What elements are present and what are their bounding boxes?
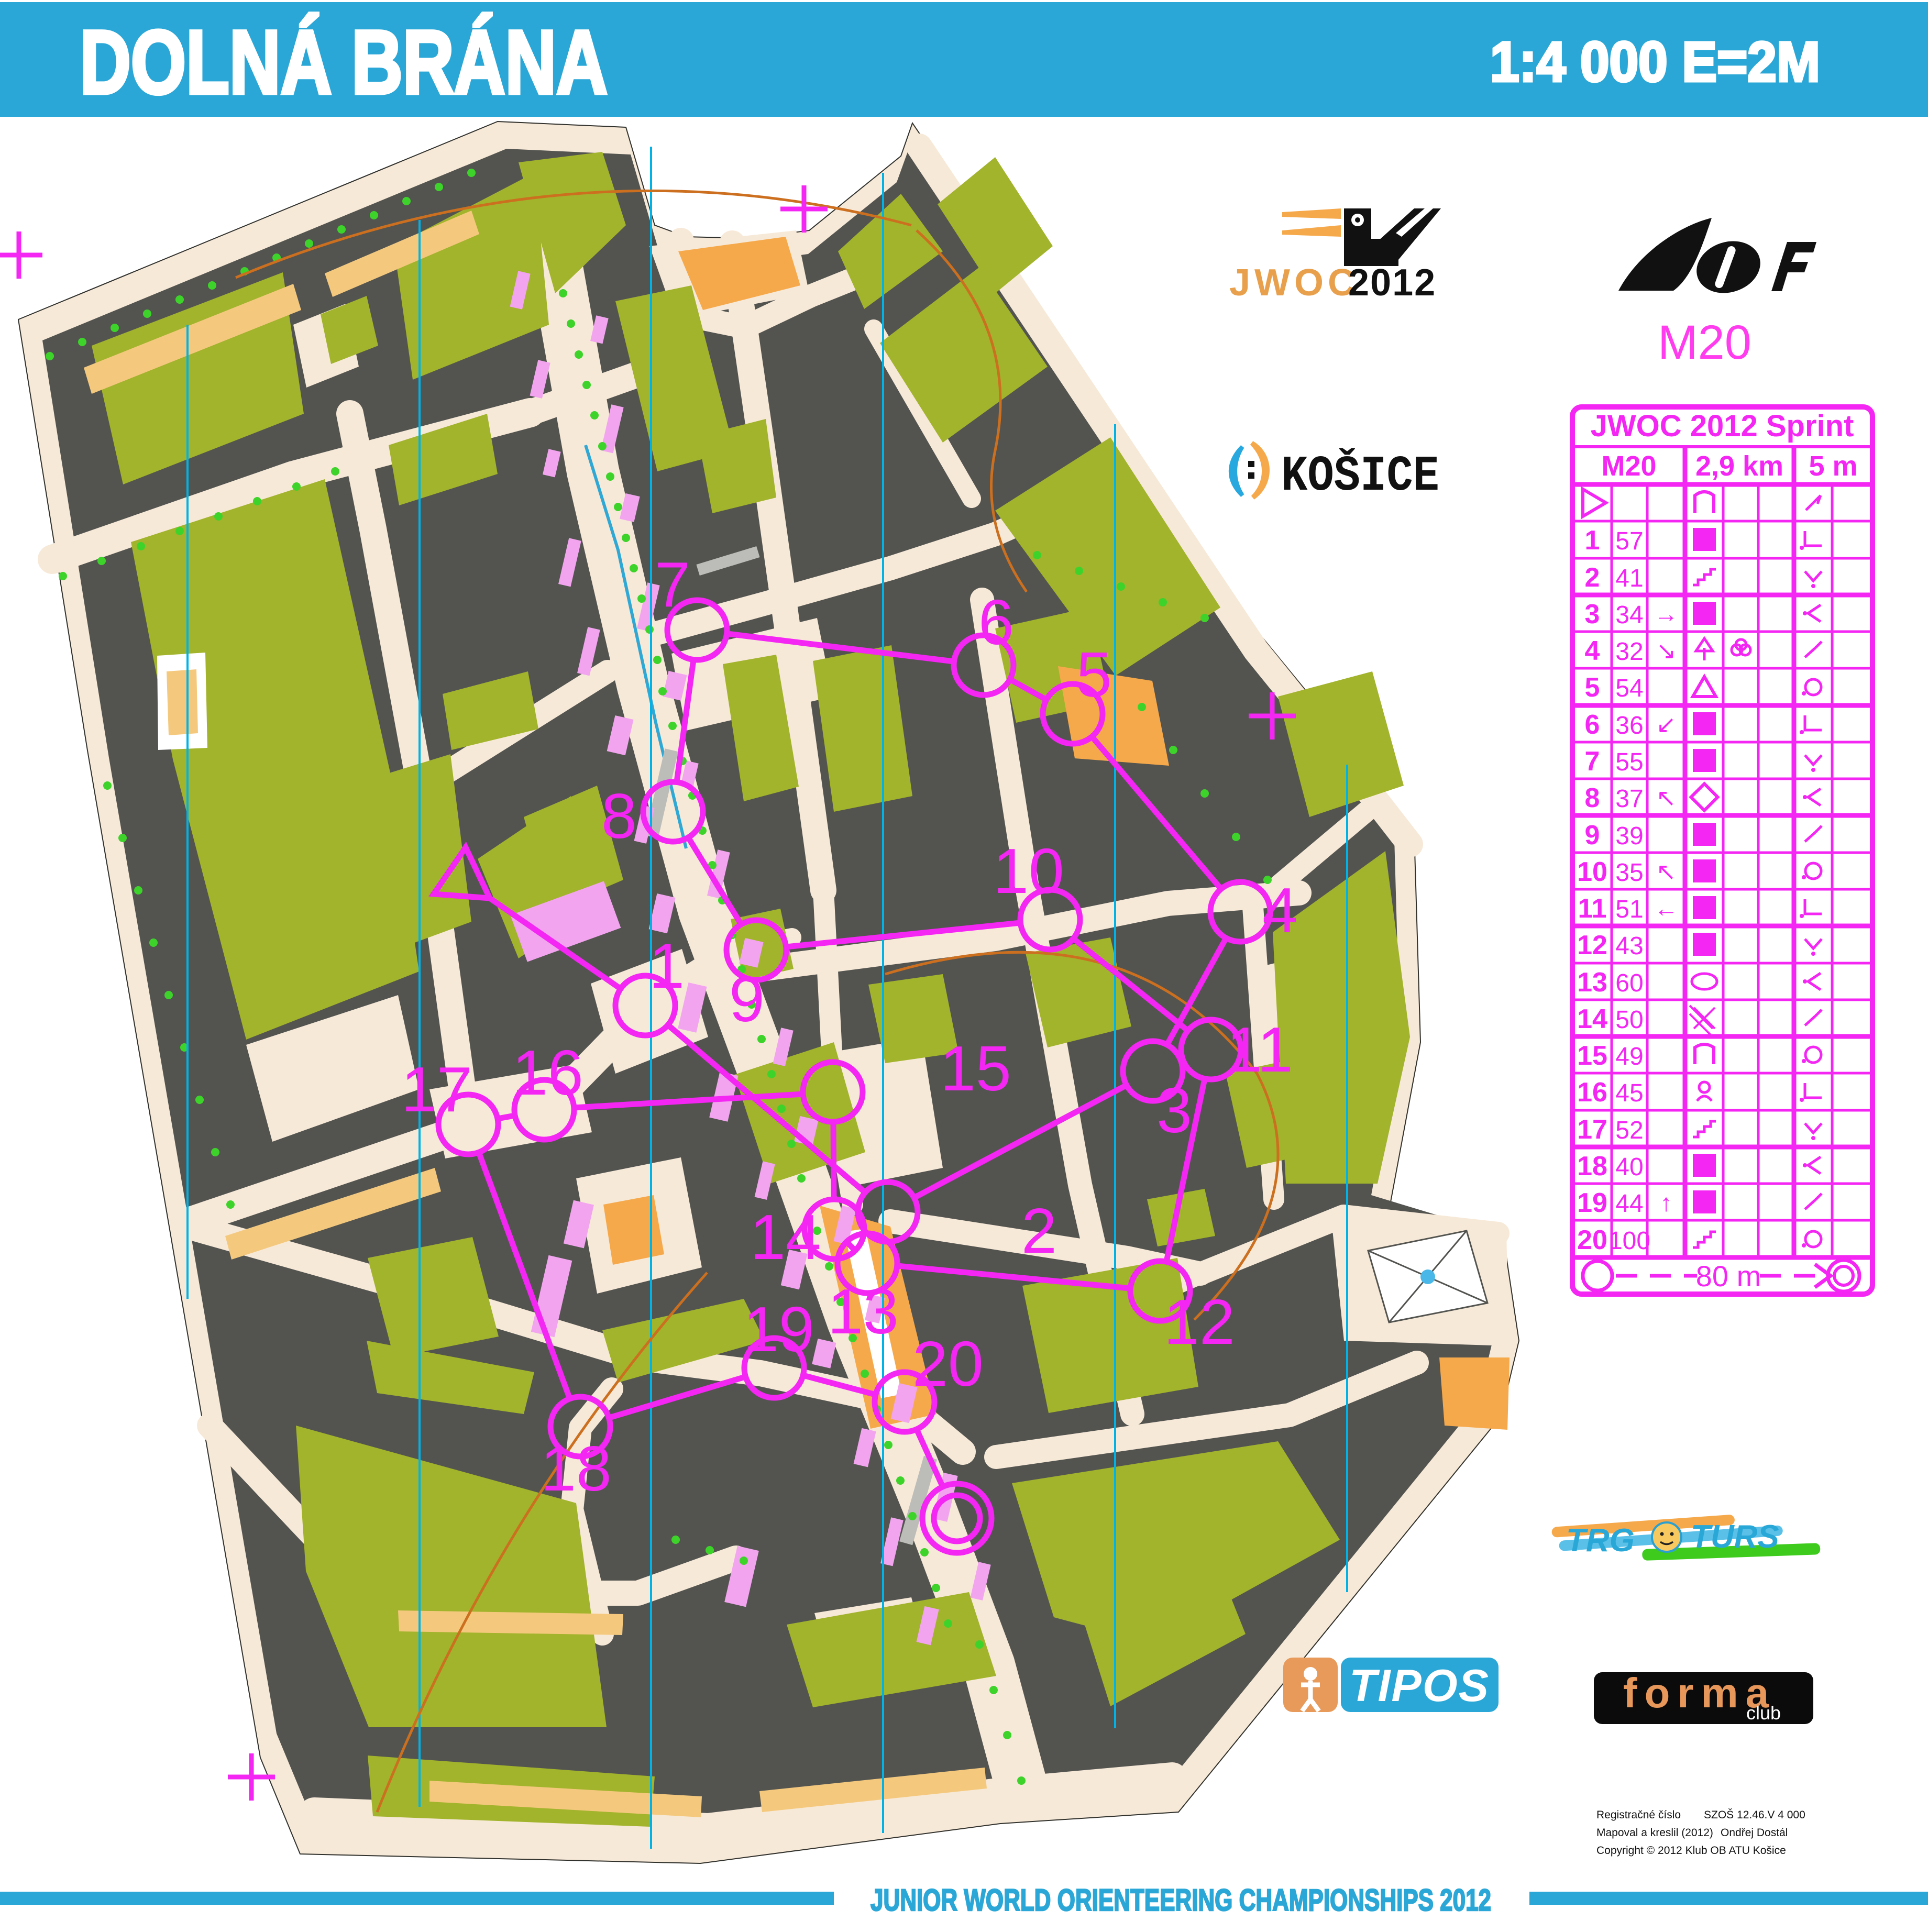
svg-text:2012: 2012 xyxy=(1348,262,1436,304)
svg-text:17: 17 xyxy=(1577,1114,1607,1145)
svg-text:51: 51 xyxy=(1615,896,1643,923)
svg-text:45: 45 xyxy=(1615,1079,1643,1107)
svg-text:6: 6 xyxy=(978,587,1014,658)
svg-text:KOŠICE: KOŠICE xyxy=(1281,447,1439,505)
svg-text:50: 50 xyxy=(1615,1006,1643,1034)
svg-text:↖: ↖ xyxy=(1656,784,1677,811)
svg-text:19: 19 xyxy=(743,1294,814,1365)
svg-text:TURS: TURS xyxy=(1691,1519,1779,1555)
svg-text:41: 41 xyxy=(1615,565,1643,592)
svg-text:13: 13 xyxy=(828,1276,899,1347)
svg-text:2: 2 xyxy=(1585,562,1600,593)
svg-text:49: 49 xyxy=(1615,1043,1643,1070)
svg-text:→: → xyxy=(1654,600,1678,627)
svg-text:13: 13 xyxy=(1577,967,1607,998)
svg-text:1:4 000 E=2M: 1:4 000 E=2M xyxy=(1490,30,1820,93)
svg-text:11: 11 xyxy=(1227,1014,1293,1085)
svg-text:80 m: 80 m xyxy=(1696,1260,1761,1293)
svg-text:20: 20 xyxy=(912,1328,984,1399)
svg-text:club: club xyxy=(1746,1702,1781,1724)
svg-text:8: 8 xyxy=(1585,783,1600,813)
svg-text:32: 32 xyxy=(1615,638,1643,666)
svg-text:M20: M20 xyxy=(1601,450,1656,482)
svg-text:1: 1 xyxy=(649,930,685,1001)
svg-text:34: 34 xyxy=(1615,601,1643,629)
svg-text:6: 6 xyxy=(1585,710,1600,740)
svg-text:16: 16 xyxy=(512,1037,583,1108)
svg-text:2,9 km: 2,9 km xyxy=(1695,450,1783,482)
svg-text:Copyright © 2012 Klub OB ATU K: Copyright © 2012 Klub OB ATU Košice xyxy=(1596,1845,1786,1857)
svg-text:7: 7 xyxy=(655,549,690,620)
svg-text:←: ← xyxy=(1654,895,1678,922)
svg-text:10: 10 xyxy=(1577,857,1607,887)
svg-text:5 m: 5 m xyxy=(1809,450,1857,482)
svg-text:12: 12 xyxy=(1577,930,1607,961)
svg-text:2: 2 xyxy=(1021,1195,1057,1266)
svg-text:4: 4 xyxy=(1585,636,1600,666)
svg-text:55: 55 xyxy=(1615,748,1643,776)
svg-text:17: 17 xyxy=(401,1054,472,1125)
svg-text:18: 18 xyxy=(541,1433,612,1504)
svg-text:JWOC: JWOC xyxy=(1229,262,1359,304)
svg-text:20: 20 xyxy=(1577,1225,1607,1255)
svg-text:9: 9 xyxy=(1585,820,1600,851)
svg-text:M20: M20 xyxy=(1658,316,1751,369)
svg-text:37: 37 xyxy=(1615,785,1643,813)
svg-text:1: 1 xyxy=(1585,525,1600,556)
svg-text:19: 19 xyxy=(1577,1188,1607,1218)
svg-text:57: 57 xyxy=(1615,527,1643,555)
svg-text:36: 36 xyxy=(1615,712,1643,739)
svg-text:5: 5 xyxy=(1585,672,1600,703)
svg-text:15: 15 xyxy=(940,1033,1011,1104)
svg-text:15: 15 xyxy=(1577,1041,1607,1071)
svg-text:44: 44 xyxy=(1615,1190,1643,1218)
svg-text:TIPOS: TIPOS xyxy=(1349,1661,1490,1711)
svg-text:↑: ↑ xyxy=(1660,1189,1672,1216)
svg-text:Registračné číslo: Registračné číslo xyxy=(1596,1809,1681,1821)
svg-text:60: 60 xyxy=(1615,969,1643,997)
svg-text:11: 11 xyxy=(1578,893,1607,924)
svg-text:43: 43 xyxy=(1615,932,1643,960)
svg-text:52: 52 xyxy=(1615,1117,1643,1144)
svg-text:7: 7 xyxy=(1585,746,1600,777)
svg-text:3: 3 xyxy=(1585,599,1600,630)
svg-text:9: 9 xyxy=(729,964,765,1035)
svg-text:JWOC 2012 Sprint: JWOC 2012 Sprint xyxy=(1591,409,1854,443)
svg-text:12: 12 xyxy=(1164,1286,1235,1357)
svg-text:SZOŠ 12.46.V 4 000: SZOŠ 12.46.V 4 000 xyxy=(1704,1809,1805,1821)
svg-text:3: 3 xyxy=(1156,1075,1192,1146)
svg-text:8: 8 xyxy=(601,780,637,852)
svg-text:↙: ↙ xyxy=(1656,711,1677,738)
svg-text:14: 14 xyxy=(1577,1004,1607,1034)
svg-text:5: 5 xyxy=(1076,639,1112,710)
svg-text:16: 16 xyxy=(1577,1077,1607,1108)
svg-text:14: 14 xyxy=(750,1201,821,1273)
svg-text:100: 100 xyxy=(1608,1227,1650,1255)
svg-text:JUNIOR WORLD ORIENTEERING CHAM: JUNIOR WORLD ORIENTEERING CHAMPIONSHIPS … xyxy=(871,1883,1491,1917)
svg-text:DOLNÁ BRÁNA: DOLNÁ BRÁNA xyxy=(80,12,608,113)
svg-text:↖: ↖ xyxy=(1656,858,1677,885)
svg-text:4: 4 xyxy=(1262,875,1298,946)
svg-text:TRG: TRG xyxy=(1566,1522,1635,1559)
svg-text:54: 54 xyxy=(1615,675,1643,702)
svg-text:↘: ↘ xyxy=(1656,637,1677,664)
svg-text:40: 40 xyxy=(1615,1153,1643,1181)
svg-text:39: 39 xyxy=(1615,822,1643,850)
svg-text:18: 18 xyxy=(1577,1151,1607,1182)
svg-text:10: 10 xyxy=(993,835,1064,907)
svg-text:Mapoval a kreslil (2012): Mapoval a kreslil (2012) xyxy=(1596,1827,1713,1839)
svg-text:35: 35 xyxy=(1615,859,1643,887)
svg-text:Ondřej Dostál: Ondřej Dostál xyxy=(1721,1827,1788,1839)
